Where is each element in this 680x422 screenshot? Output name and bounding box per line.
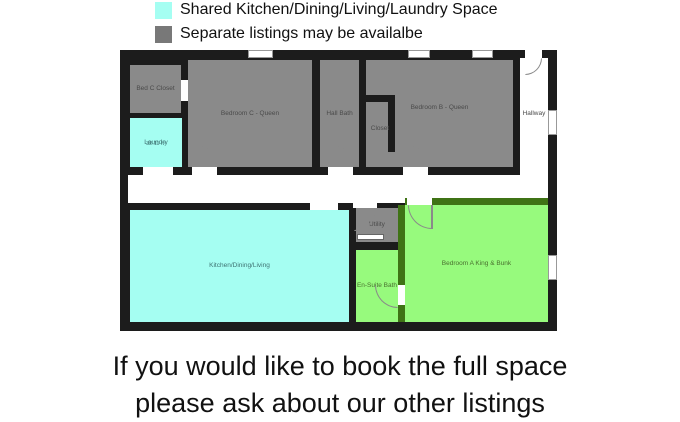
door-leaf-hall-bath xyxy=(327,143,329,167)
room-label-bed-c-closet: Bed C Closet xyxy=(136,85,174,93)
room-bed-c-closet: Bed C Closet xyxy=(130,65,181,113)
room-label-bedroom-c: Bedroom C - Queen xyxy=(221,110,279,118)
room-label-kitchen: Kitchen/Dining/Living xyxy=(209,262,270,270)
door-opening-laundry xyxy=(143,167,173,175)
room-label-bedroom-a: Bedroom A King & Bunk xyxy=(442,260,511,268)
room-laundry: Laundry 32.11 ft² xyxy=(130,118,182,167)
window-bedroom-a xyxy=(548,255,557,280)
room-label-hall-bath: Hall Bath xyxy=(326,110,352,118)
door-opening-en-suite-bath xyxy=(398,285,405,305)
door-opening-hallway-entry xyxy=(525,50,542,58)
door-leaf-bedroom-a xyxy=(431,205,433,229)
door-opening-bedroom-b xyxy=(403,167,428,175)
legend-label-separate: Separate listings may be availalbe xyxy=(180,25,423,43)
door-opening-utility xyxy=(353,201,377,208)
door-opening-kitchen xyxy=(310,203,338,210)
wall-closet-right xyxy=(388,95,395,152)
door-opening-bedroom-a xyxy=(407,198,432,205)
footer-line-2: please ask about our other listings xyxy=(0,385,680,422)
room-label-bedroom-b: Bedroom B - Queen xyxy=(411,104,469,112)
hallway-vertical xyxy=(520,58,548,203)
footer-line-1: If you would like to book the full space xyxy=(0,348,680,385)
room-area-laundry: 32.11 ft² xyxy=(146,141,166,147)
shared-space-swatch-icon xyxy=(155,2,172,19)
floor-plan: Bed C Closet Laundry 32.11 ft² Bedroom C… xyxy=(120,50,557,331)
room-kitchen-dining-living: Kitchen/Dining/Living xyxy=(130,210,349,322)
room-label-hallway: Hallway xyxy=(520,110,548,117)
window-bedroom-b-1 xyxy=(408,50,430,58)
window-bedroom-c xyxy=(248,50,273,58)
separate-listing-swatch-icon xyxy=(155,26,172,43)
utility-door-leaf xyxy=(357,234,384,240)
door-opening-hall-bath xyxy=(328,167,353,175)
door-leaf-bedroom-c xyxy=(191,143,193,167)
window-bedroom-b-2 xyxy=(472,50,493,58)
legend-label-shared: Shared Kitchen/Dining/Living/Laundry Spa… xyxy=(180,1,498,19)
door-opening-bedroom-c xyxy=(192,167,217,175)
footer-note: If you would like to book the full space… xyxy=(0,348,680,422)
door-leaf-bedroom-b xyxy=(402,143,404,167)
window-hallway xyxy=(548,110,557,135)
room-label-closet: Closet xyxy=(364,125,396,132)
legend: Shared Kitchen/Dining/Living/Laundry Spa… xyxy=(0,0,680,48)
door-opening-bed-c-closet xyxy=(181,80,188,101)
